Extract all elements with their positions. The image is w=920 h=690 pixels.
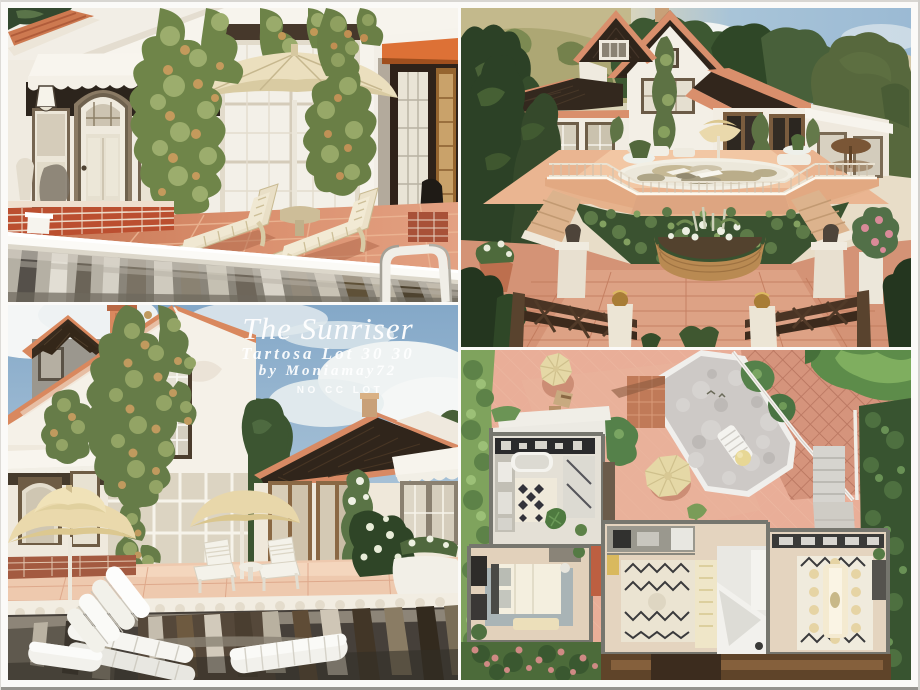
svg-text:Tartosa Lot 30 30: Tartosa Lot 30 30 bbox=[241, 344, 415, 363]
svg-text:by Moniamay72: by Moniamay72 bbox=[259, 363, 398, 379]
svg-text:The Sunriser: The Sunriser bbox=[242, 311, 413, 346]
svg-text:NO CC LOT: NO CC LOT bbox=[297, 385, 384, 396]
